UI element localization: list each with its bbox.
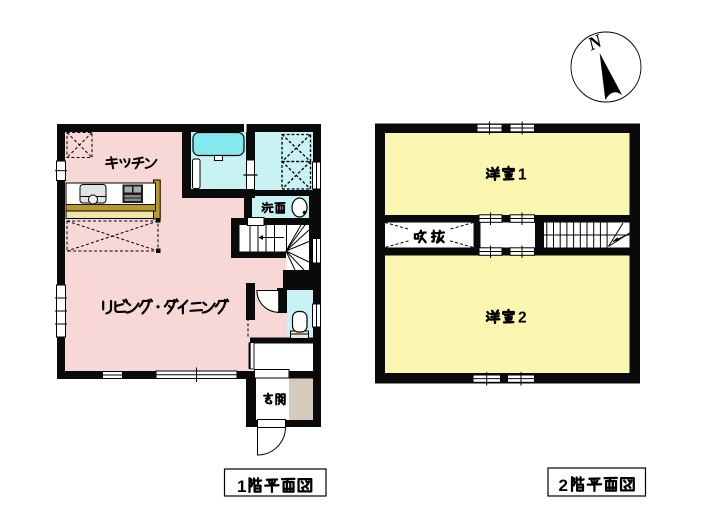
- svg-text:1: 1: [237, 477, 246, 496]
- svg-text:2: 2: [559, 476, 568, 495]
- svg-text:1: 1: [518, 167, 527, 184]
- svg-text:2: 2: [518, 310, 527, 327]
